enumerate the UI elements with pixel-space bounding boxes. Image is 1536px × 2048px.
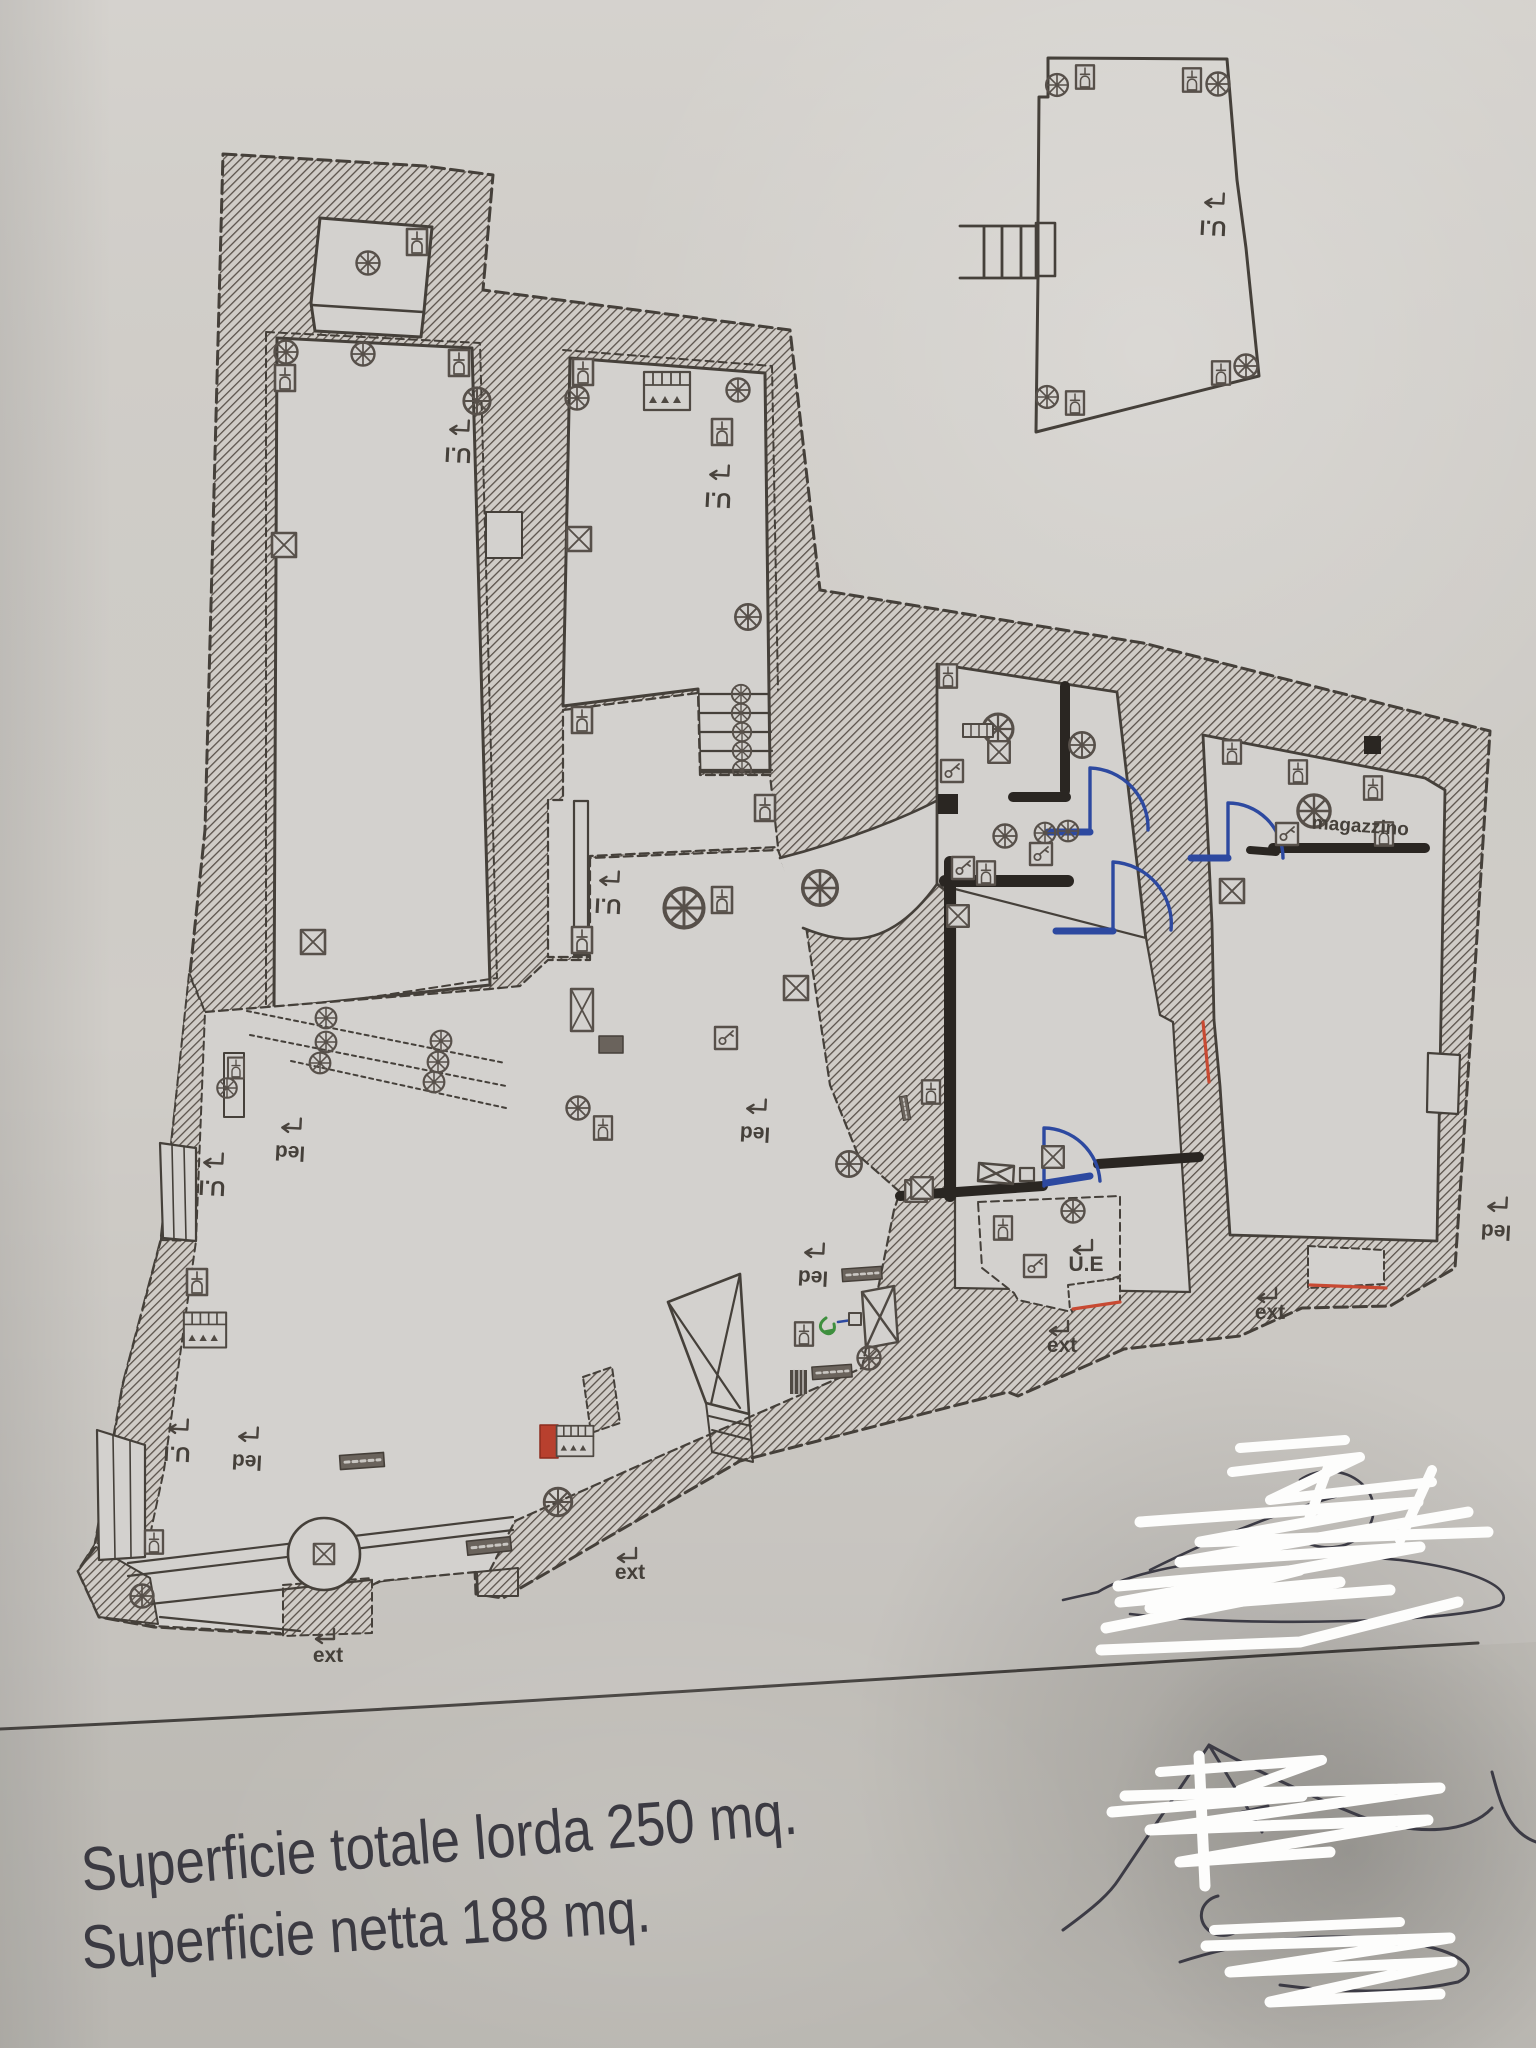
- svg-text:led: led: [1480, 1219, 1512, 1244]
- svg-text:U.I: U.I: [594, 893, 622, 917]
- svg-text:U.I: U.I: [704, 487, 732, 511]
- svg-text:ext: ext: [615, 1561, 645, 1584]
- svg-text:led: led: [231, 1449, 263, 1474]
- svg-text:led: led: [274, 1140, 306, 1165]
- svg-text:ext: ext: [1255, 1301, 1285, 1324]
- svg-text:U.I: U.I: [1199, 215, 1227, 239]
- svg-text:U.I: U.I: [198, 1175, 226, 1199]
- svg-text:U.I: U.I: [163, 1441, 191, 1465]
- svg-text:U.E: U.E: [1068, 1253, 1103, 1276]
- svg-text:U.I: U.I: [444, 442, 472, 466]
- svg-text:led: led: [797, 1265, 829, 1290]
- svg-text:led: led: [739, 1121, 771, 1146]
